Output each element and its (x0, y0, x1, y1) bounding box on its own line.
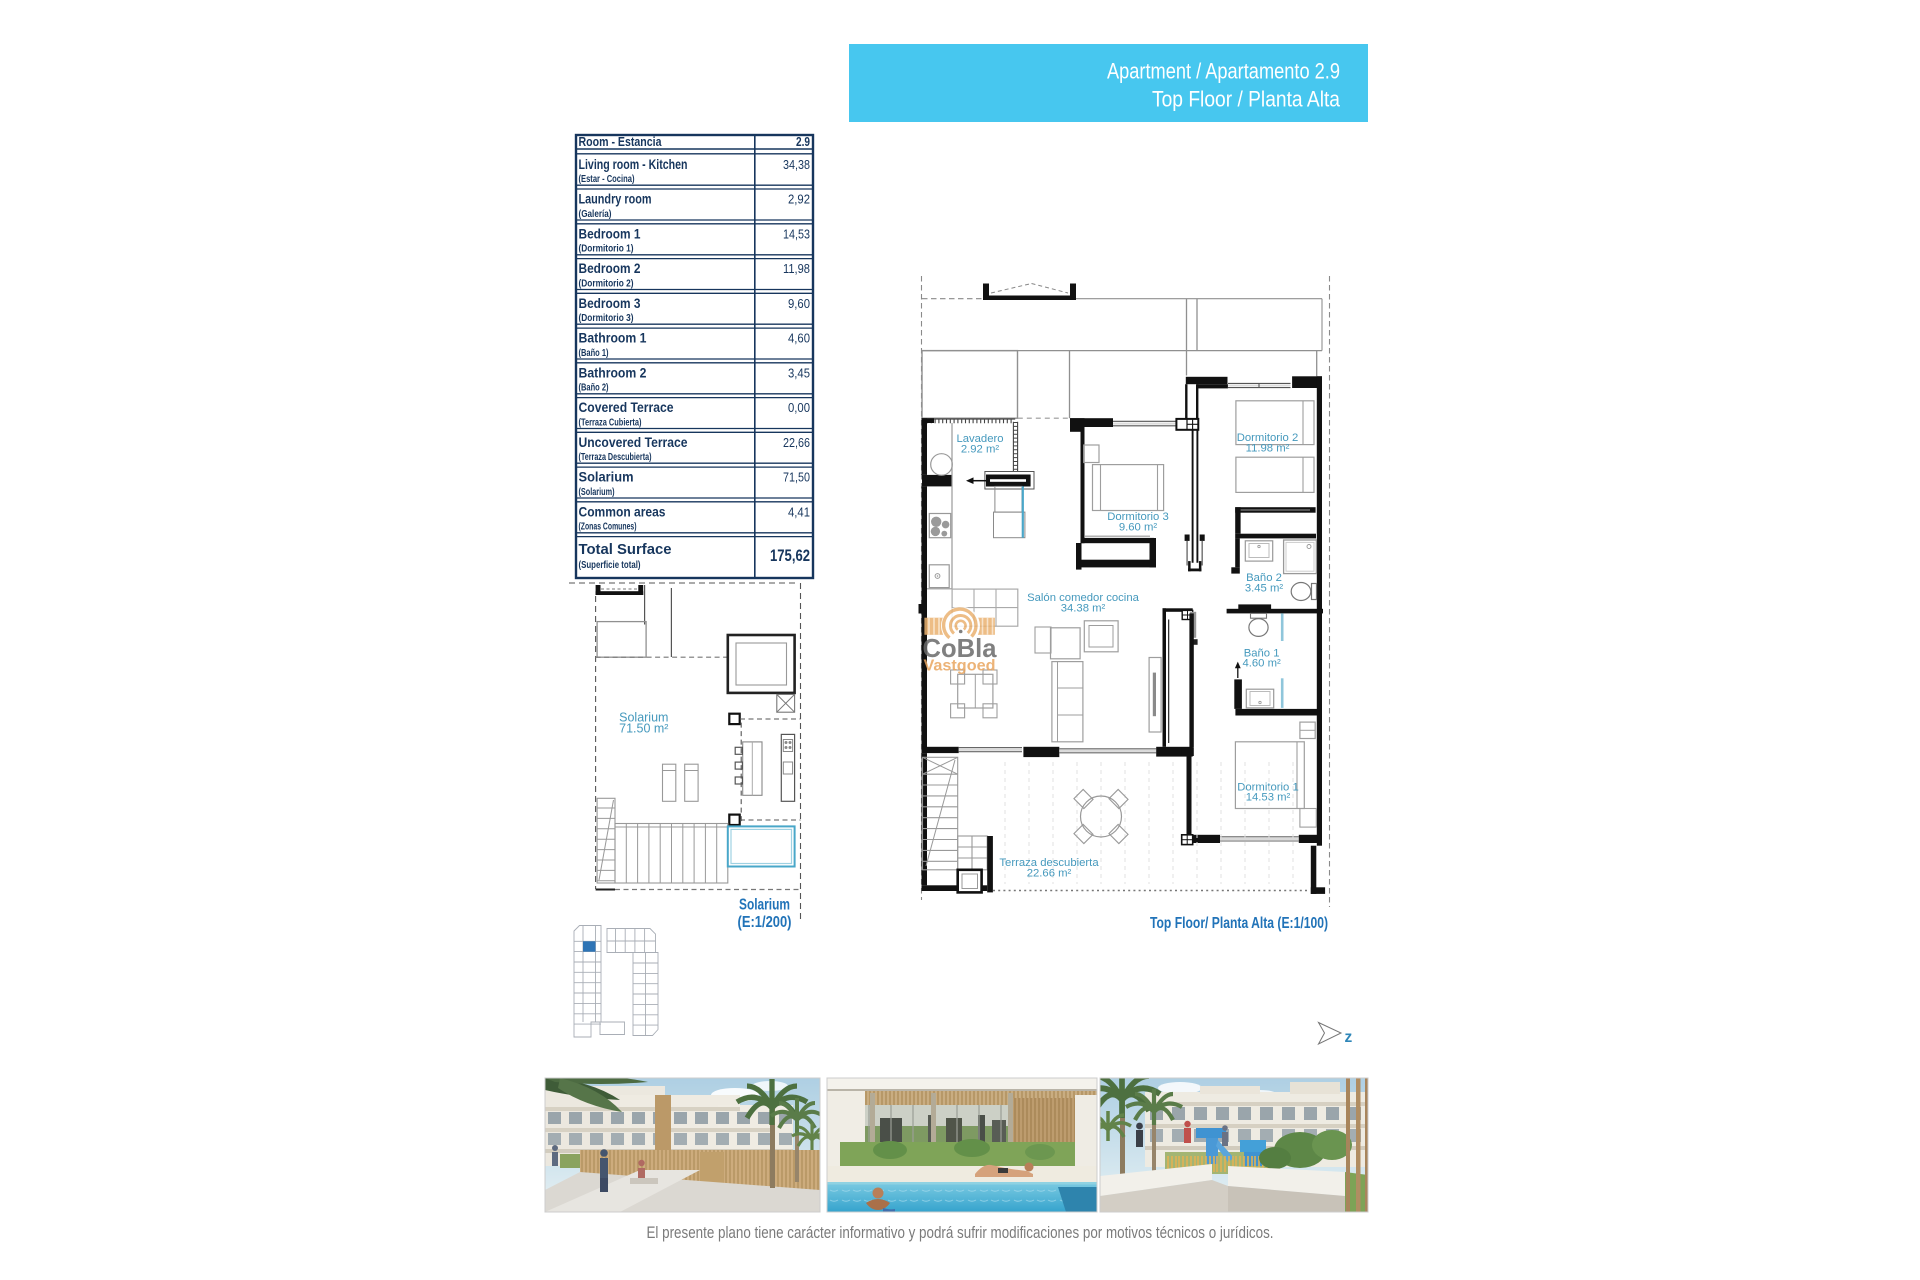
svg-text:34.38 m²: 34.38 m² (1061, 603, 1106, 615)
svg-text:Top Floor/ Planta Alta (E:1/10: Top Floor/ Planta Alta (E:1/100) (1150, 915, 1328, 932)
svg-text:(Galería): (Galería) (579, 209, 612, 220)
svg-text:2,92: 2,92 (788, 192, 810, 207)
svg-text:Living room - Kitchen: Living room - Kitchen (579, 157, 688, 172)
svg-text:(Solarium): (Solarium) (579, 487, 615, 498)
svg-text:(E:1/200): (E:1/200) (738, 914, 792, 931)
svg-text:22,66: 22,66 (783, 435, 810, 450)
svg-text:(Dormitorio 2): (Dormitorio 2) (579, 278, 634, 289)
svg-text:Bathroom 1: Bathroom 1 (579, 331, 647, 346)
svg-text:Covered Terrace: Covered Terrace (579, 400, 674, 415)
svg-text:(Baño 2): (Baño 2) (579, 383, 609, 394)
svg-text:Laundry room: Laundry room (579, 192, 652, 207)
svg-text:Bathroom 2: Bathroom 2 (579, 365, 647, 380)
svg-text:4,60: 4,60 (788, 331, 810, 346)
svg-text:Solarium: Solarium (739, 897, 790, 914)
svg-text:11,98: 11,98 (783, 261, 810, 276)
svg-text:71,50: 71,50 (783, 470, 810, 485)
svg-text:175,62: 175,62 (770, 547, 810, 565)
svg-text:4,41: 4,41 (788, 504, 810, 519)
svg-text:Common areas: Common areas (579, 504, 666, 519)
svg-text:3.45 m²: 3.45 m² (1245, 583, 1284, 595)
svg-text:0,00: 0,00 (788, 400, 810, 415)
svg-text:Total Surface: Total Surface (579, 541, 672, 558)
svg-text:9.60 m²: 9.60 m² (1119, 522, 1158, 534)
svg-text:Top Floor / Planta Alta: Top Floor / Planta Alta (1152, 87, 1341, 112)
svg-text:z: z (1345, 1029, 1353, 1046)
svg-text:9,60: 9,60 (788, 296, 810, 311)
svg-text:71.50 m²: 71.50 m² (619, 722, 668, 736)
svg-text:34,38: 34,38 (783, 157, 810, 172)
svg-text:2.9: 2.9 (796, 134, 810, 149)
svg-text:11.98 m²: 11.98 m² (1246, 443, 1290, 455)
svg-text:22.66 m²: 22.66 m² (1027, 868, 1072, 880)
svg-text:3,45: 3,45 (788, 365, 810, 380)
svg-text:(Estar - Cocina): (Estar - Cocina) (579, 174, 635, 185)
svg-text:(Zonas Comunes): (Zonas Comunes) (579, 522, 637, 533)
svg-text:Apartment / Apartamento 2.9: Apartment / Apartamento 2.9 (1107, 59, 1340, 84)
svg-text:(Dormitorio 1): (Dormitorio 1) (579, 244, 634, 255)
svg-text:Bedroom 2: Bedroom 2 (579, 261, 641, 276)
svg-text:(Baño 1): (Baño 1) (579, 348, 609, 359)
svg-text:14,53: 14,53 (783, 226, 810, 241)
svg-text:Uncovered Terrace: Uncovered Terrace (579, 435, 688, 450)
svg-text:4.60 m²: 4.60 m² (1242, 658, 1281, 670)
svg-text:Room - Estancia: Room - Estancia (579, 134, 663, 149)
svg-text:2.92 m²: 2.92 m² (961, 444, 1000, 456)
svg-text:Solarium: Solarium (579, 470, 634, 485)
svg-text:(Superficie total): (Superficie total) (579, 560, 641, 571)
svg-text:Bedroom 1: Bedroom 1 (579, 226, 641, 241)
svg-text:Vastgoed: Vastgoed (924, 658, 996, 675)
svg-text:El presente plano tiene caráct: El presente plano tiene carácter informa… (647, 1223, 1274, 1242)
svg-text:(Terraza Cubierta): (Terraza Cubierta) (579, 417, 642, 428)
svg-text:(Dormitorio 3): (Dormitorio 3) (579, 313, 634, 324)
svg-text:Bedroom 3: Bedroom 3 (579, 296, 641, 311)
svg-text:(Terraza Descubierta): (Terraza Descubierta) (579, 452, 652, 463)
svg-text:14.53 m²: 14.53 m² (1246, 792, 1291, 804)
